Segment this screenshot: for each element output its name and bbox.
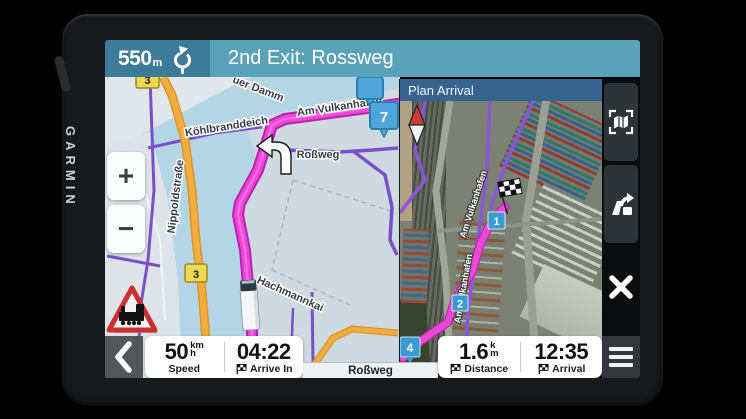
close-icon [609, 275, 633, 299]
route-marker-2: 2 [452, 295, 468, 311]
zoom-out-label: − [118, 213, 134, 245]
speed-field[interactable]: 50 km h Speed [145, 336, 224, 378]
plan-arrival-satellite-view[interactable]: Am Vulkanhafen Am Vulkanhafen 1 2 [400, 101, 602, 363]
plan-arrival-header: Plan Arrival [400, 79, 602, 101]
plan-arrival-title: Plan Arrival [400, 83, 474, 98]
arrive-in-value: 04:22 [237, 341, 291, 363]
distance-unit-bottom: m [490, 350, 498, 359]
back-icon [111, 339, 137, 375]
checkered-flag-icon [449, 363, 461, 375]
distance-value: 1.6 [459, 341, 488, 363]
svg-text:2: 2 [457, 299, 463, 311]
route-shield-bottom: 3 [185, 264, 207, 282]
menu-icon [609, 363, 633, 367]
zoom-out-button[interactable]: − [107, 205, 145, 253]
speed-value: 50 [165, 341, 188, 363]
route-options-button[interactable] [604, 165, 638, 243]
map-overview-icon [608, 109, 634, 135]
instruction-text: 2nd Exit: Rossweg [228, 47, 394, 70]
arrival-label: Arrival [552, 363, 585, 375]
street-label-rossweg: Roßweg [297, 149, 340, 161]
close-button[interactable] [609, 275, 633, 299]
speed-unit-bottom: h [190, 350, 204, 359]
current-street-name: Roßweg [348, 365, 393, 377]
distance-field[interactable]: 1.6 k m Dis [438, 336, 520, 378]
instruction-banner[interactable]: 2nd Exit: Rossweg [210, 40, 640, 77]
navigation-bar: 550 m 2nd Exit: Rossweg [105, 40, 640, 77]
map-overview-button[interactable] [604, 83, 638, 161]
svg-text:7: 7 [380, 109, 388, 126]
menu-button[interactable] [602, 336, 640, 378]
route-detour-icon [608, 191, 634, 217]
checkered-flag-icon [537, 363, 549, 375]
garmin-device: GARMIN [62, 14, 663, 406]
speed-label: Speed [168, 363, 200, 375]
checkered-flag-icon [235, 363, 247, 375]
data-panel-left: 50 km h Speed 04:22 [145, 336, 303, 378]
action-column [602, 79, 640, 336]
back-button[interactable] [105, 336, 143, 378]
roundabout-icon [171, 46, 194, 74]
menu-icon [609, 355, 633, 359]
current-street-bar: Roßweg [303, 362, 438, 378]
zoom-in-button[interactable]: + [107, 152, 145, 200]
svg-text:1: 1 [493, 216, 499, 228]
arrive-in-label: Arrive In [250, 363, 293, 375]
zoom-in-label: + [118, 160, 134, 192]
power-button[interactable] [54, 55, 71, 92]
data-panel-right: 1.6 k m Dis [438, 336, 602, 378]
arrival-value: 12:35 [534, 341, 588, 363]
screen: 3 3 uer Damm Köhlbranddeich Am Vulkanhaf… [105, 40, 640, 378]
stage: GARMIN [0, 0, 746, 419]
svg-text:3: 3 [193, 269, 199, 281]
distance-label: Distance [464, 363, 508, 375]
plan-arrival-panel[interactable]: Plan Arrival [400, 79, 602, 363]
svg-text:4: 4 [407, 341, 414, 355]
maneuver-distance-unit: m [153, 57, 163, 69]
maneuver-distance: 550 [118, 47, 152, 71]
maneuver-panel[interactable]: 550 m [105, 40, 210, 77]
menu-icon [609, 347, 633, 351]
route-marker-1: 1 [488, 212, 505, 229]
arrive-in-field[interactable]: 04:22 Arrive In [225, 336, 304, 378]
arrival-field[interactable]: 12:35 Arrival [521, 336, 603, 378]
brand-logo: GARMIN [63, 126, 78, 209]
